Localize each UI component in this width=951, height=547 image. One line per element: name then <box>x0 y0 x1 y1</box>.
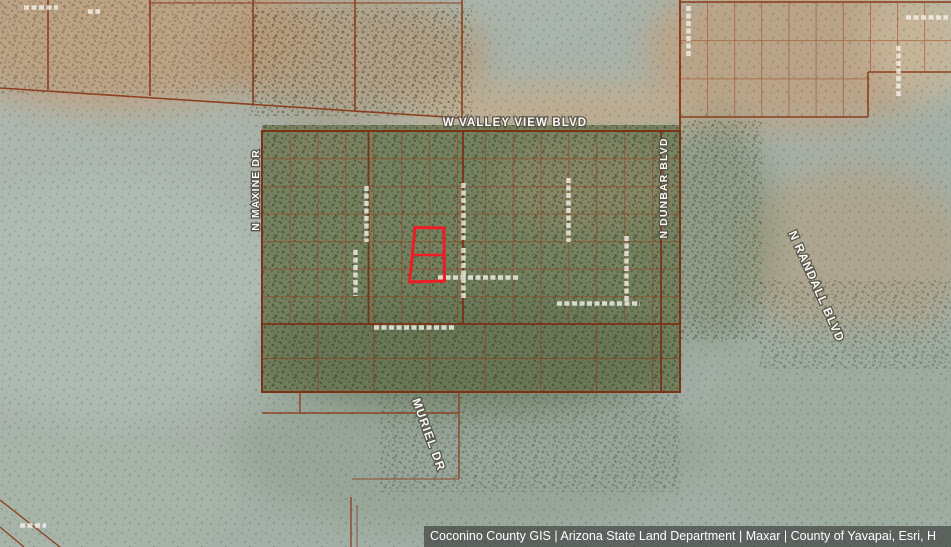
map-viewport[interactable]: W VALLEY VIEW BLVD N MAXINE DR N DUNBAR … <box>0 0 951 547</box>
parcel-grid-subdivision <box>262 131 680 392</box>
street-label-w-valley-view-blvd: W VALLEY VIEW BLVD <box>443 117 587 129</box>
map-canvas[interactable]: W VALLEY VIEW BLVD N MAXINE DR N DUNBAR … <box>0 0 951 547</box>
attribution-bar: Coconino County GIS | Arizona State Land… <box>424 526 951 547</box>
street-label-n-dunbar-blvd: N DUNBAR BLVD <box>658 137 670 238</box>
attribution-text: Coconino County GIS | Arizona State Land… <box>430 529 936 543</box>
street-label-n-maxine-dr: N MAXINE DR <box>250 149 262 231</box>
